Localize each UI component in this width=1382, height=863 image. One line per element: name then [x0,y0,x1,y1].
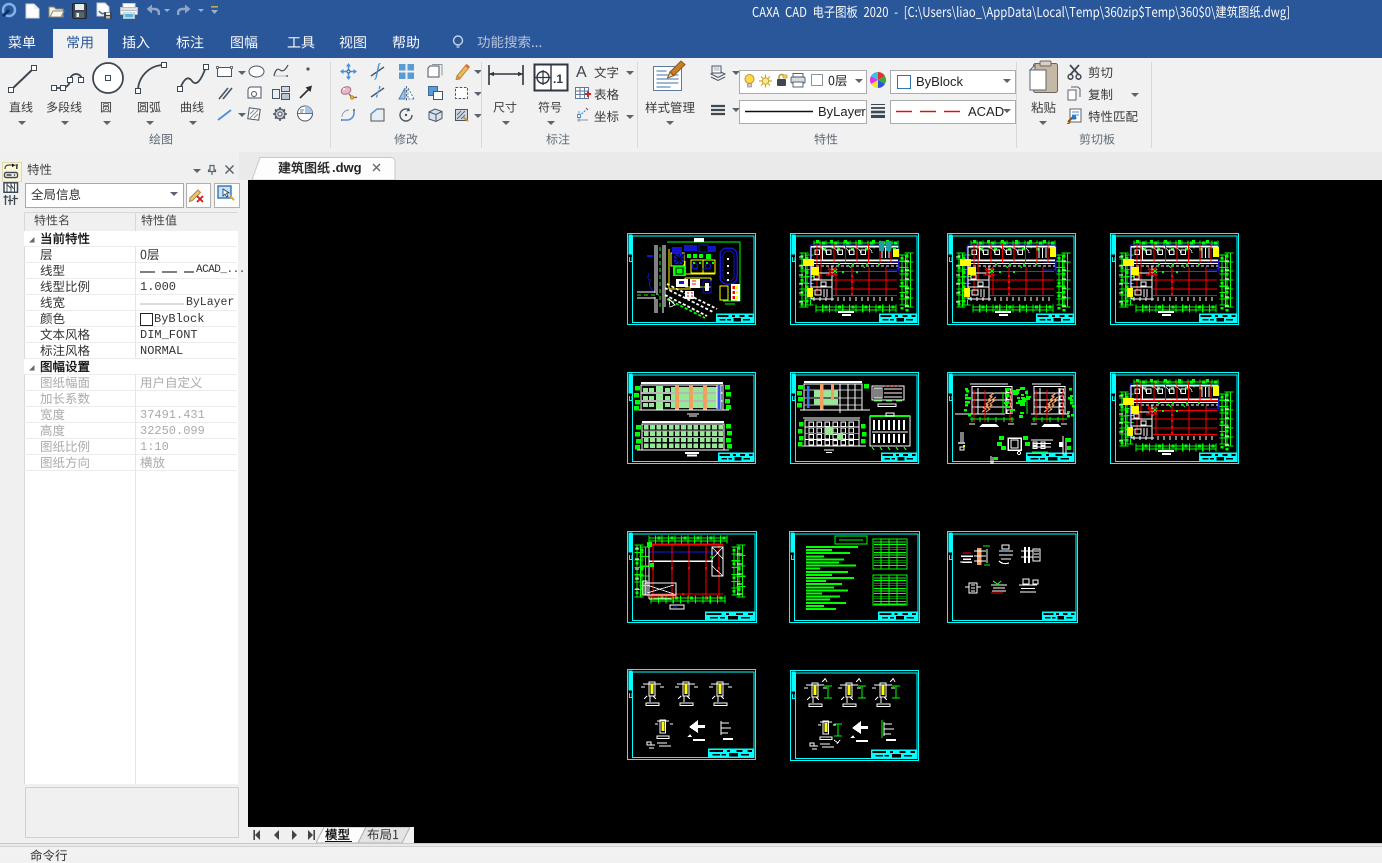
svg-text:A: A [576,64,587,79]
svg-text:.1: .1 [553,72,563,86]
